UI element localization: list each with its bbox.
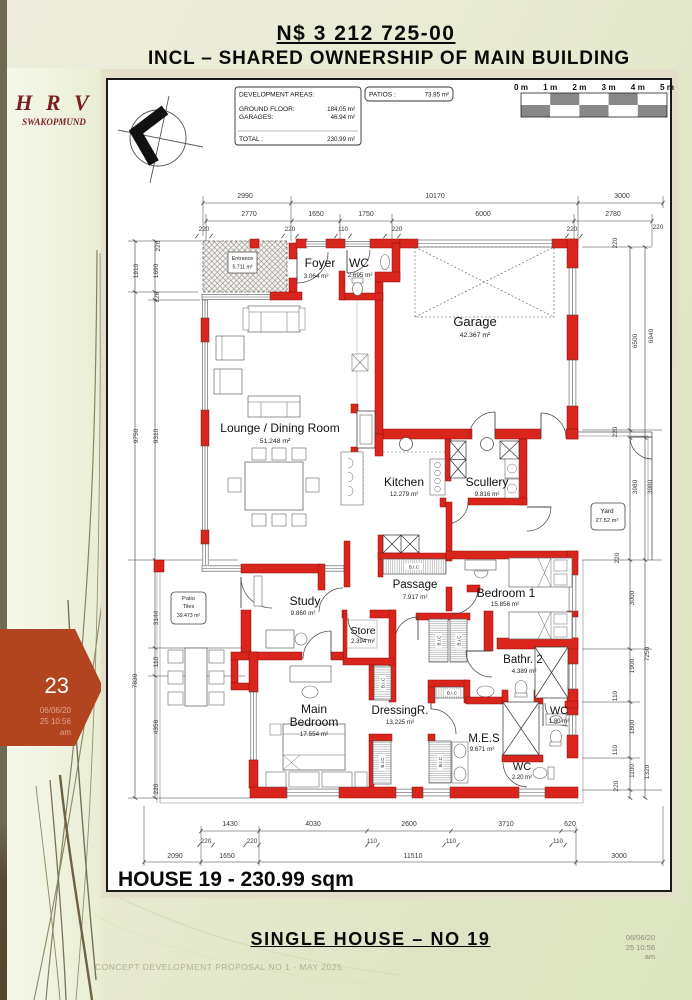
svg-text:220: 220 <box>155 240 162 251</box>
svg-text:1.80 m²: 1.80 m² <box>549 719 569 725</box>
svg-text:220: 220 <box>614 552 621 563</box>
svg-text:110: 110 <box>446 838 457 845</box>
svg-text:110: 110 <box>367 838 378 845</box>
svg-text:WC: WC <box>550 705 568 717</box>
svg-text:Bathr. 2: Bathr. 2 <box>503 654 543 666</box>
svg-text:1100: 1100 <box>629 764 636 778</box>
svg-text:3000: 3000 <box>629 590 636 605</box>
svg-text:B.I.C: B.I.C <box>438 756 443 767</box>
svg-text:PATIOS :: PATIOS : <box>369 92 396 99</box>
svg-text:9.816 m²: 9.816 m² <box>475 491 500 498</box>
svg-text:220: 220 <box>613 780 620 791</box>
svg-text:230.99 m²: 230.99 m² <box>327 136 355 143</box>
svg-text:9.860 m²: 9.860 m² <box>291 610 316 617</box>
svg-text:4030: 4030 <box>305 821 321 828</box>
svg-text:3 m: 3 m <box>602 83 616 92</box>
svg-text:3000: 3000 <box>614 193 630 200</box>
svg-text:2.20 m²: 2.20 m² <box>512 775 532 781</box>
svg-text:Store: Store <box>350 625 375 637</box>
svg-text:1650: 1650 <box>219 853 235 860</box>
svg-text:1900: 1900 <box>629 658 636 673</box>
svg-text:3.064 m²: 3.064 m² <box>304 273 329 280</box>
svg-text:Main: Main <box>301 702 327 716</box>
svg-text:Bedroom: Bedroom <box>290 715 339 729</box>
svg-text:184.05 m²: 184.05 m² <box>327 106 355 113</box>
svg-text:220: 220 <box>154 291 161 302</box>
svg-text:Bedroom 1: Bedroom 1 <box>477 586 536 600</box>
svg-text:B.I.C: B.I.C <box>409 565 420 570</box>
svg-text:220: 220 <box>201 838 212 845</box>
svg-text:42.367 m²: 42.367 m² <box>460 332 491 339</box>
svg-text:220: 220 <box>199 226 210 233</box>
svg-text:Entrance: Entrance <box>232 256 254 262</box>
svg-text:Tiles: Tiles <box>183 604 195 610</box>
svg-text:WC: WC <box>513 761 531 773</box>
svg-text:3000: 3000 <box>611 853 627 860</box>
svg-text:5.711 m²: 5.711 m² <box>232 265 252 271</box>
svg-text:220: 220 <box>247 838 258 845</box>
svg-text:620: 620 <box>564 821 576 828</box>
svg-text:110: 110 <box>153 656 160 667</box>
svg-text:1650: 1650 <box>308 211 324 218</box>
svg-text:4 m: 4 m <box>631 83 645 92</box>
svg-text:1320: 1320 <box>644 764 651 779</box>
svg-text:3710: 3710 <box>498 821 514 828</box>
svg-text:B.I.C: B.I.C <box>456 635 461 646</box>
svg-text:1690: 1690 <box>153 263 160 278</box>
svg-text:B.I.C: B.I.C <box>380 677 385 688</box>
svg-text:9750: 9750 <box>133 428 140 443</box>
svg-text:3980: 3980 <box>632 479 639 494</box>
svg-text:B.I.C: B.I.C <box>447 691 458 696</box>
svg-text:2.394 m²: 2.394 m² <box>351 639 375 645</box>
svg-text:Yard: Yard <box>600 508 614 515</box>
svg-text:46.94 m²: 46.94 m² <box>331 114 355 121</box>
svg-text:220: 220 <box>153 783 160 794</box>
svg-text:GROUND FLOOR:: GROUND FLOOR: <box>239 106 295 113</box>
svg-text:5 m: 5 m <box>660 83 674 92</box>
svg-text:Passage: Passage <box>393 579 438 591</box>
svg-text:2770: 2770 <box>241 211 257 218</box>
svg-text:6000: 6000 <box>475 211 491 218</box>
svg-text:6500: 6500 <box>632 333 639 348</box>
svg-text:4356: 4356 <box>153 719 160 734</box>
svg-text:Kitchen: Kitchen <box>384 475 424 489</box>
svg-text:Lounge / Dining Room: Lounge / Dining Room <box>220 421 339 435</box>
svg-text:1 m: 1 m <box>543 83 557 92</box>
svg-text:220: 220 <box>567 226 578 233</box>
svg-text:220: 220 <box>612 237 619 248</box>
svg-text:Garage: Garage <box>453 314 496 329</box>
svg-text:M.E.S: M.E.S <box>468 733 500 745</box>
svg-text:110: 110 <box>553 838 564 845</box>
svg-text:110: 110 <box>612 690 619 701</box>
svg-text:220: 220 <box>392 226 403 233</box>
svg-text:13.225 m²: 13.225 m² <box>386 719 414 726</box>
svg-text:Patio: Patio <box>182 596 195 602</box>
svg-text:2600: 2600 <box>401 821 417 828</box>
svg-text:0 m: 0 m <box>514 83 528 92</box>
svg-text:1750: 1750 <box>358 211 374 218</box>
svg-text:4.389 m²: 4.389 m² <box>512 668 537 675</box>
svg-text:1430: 1430 <box>222 821 238 828</box>
svg-text:B.I.C: B.I.C <box>436 635 441 646</box>
svg-text:1800: 1800 <box>629 719 636 734</box>
svg-text:DressingR.: DressingR. <box>372 705 429 717</box>
svg-text:2780: 2780 <box>605 211 621 218</box>
svg-text:7830: 7830 <box>132 673 139 688</box>
svg-text:7250: 7250 <box>644 646 651 661</box>
svg-text:GARAGES:: GARAGES: <box>239 114 274 121</box>
svg-text:2.695 m²: 2.695 m² <box>348 272 373 279</box>
svg-text:DEVELOPMENT AREAS:: DEVELOPMENT AREAS: <box>239 92 315 99</box>
svg-text:1910: 1910 <box>133 263 140 278</box>
svg-text:73.95 m²: 73.95 m² <box>425 92 449 99</box>
svg-text:51.248 m²: 51.248 m² <box>260 438 291 445</box>
svg-text:B.I.C: B.I.C <box>380 757 385 768</box>
svg-text:11510: 11510 <box>404 853 423 860</box>
svg-text:10170: 10170 <box>425 193 445 200</box>
svg-text:12.279 m²: 12.279 m² <box>390 491 418 498</box>
svg-text:2090: 2090 <box>167 853 183 860</box>
svg-text:220: 220 <box>653 224 664 231</box>
svg-text:Scullery: Scullery <box>466 475 509 489</box>
svg-text:Study: Study <box>290 594 321 608</box>
svg-text:220: 220 <box>285 226 296 233</box>
svg-text:15.856 m²: 15.856 m² <box>491 601 519 608</box>
svg-text:110: 110 <box>612 744 619 755</box>
svg-text:9.671 m²: 9.671 m² <box>470 746 495 753</box>
svg-text:27.52 m²: 27.52 m² <box>596 518 619 524</box>
svg-text:17.554 m²: 17.554 m² <box>300 731 328 738</box>
svg-text:2990: 2990 <box>237 193 253 200</box>
svg-text:110: 110 <box>338 226 349 233</box>
svg-text:39.473 m²: 39.473 m² <box>177 613 201 619</box>
svg-text:6940: 6940 <box>648 328 655 343</box>
svg-text:3144: 3144 <box>153 610 160 625</box>
svg-text:7.917 m²: 7.917 m² <box>403 594 428 601</box>
svg-text:TOTAL :: TOTAL : <box>239 136 263 143</box>
svg-text:9310: 9310 <box>153 428 160 443</box>
svg-text:WC: WC <box>349 256 369 270</box>
svg-text:Foyer: Foyer <box>305 256 336 270</box>
svg-text:2 m: 2 m <box>572 83 586 92</box>
